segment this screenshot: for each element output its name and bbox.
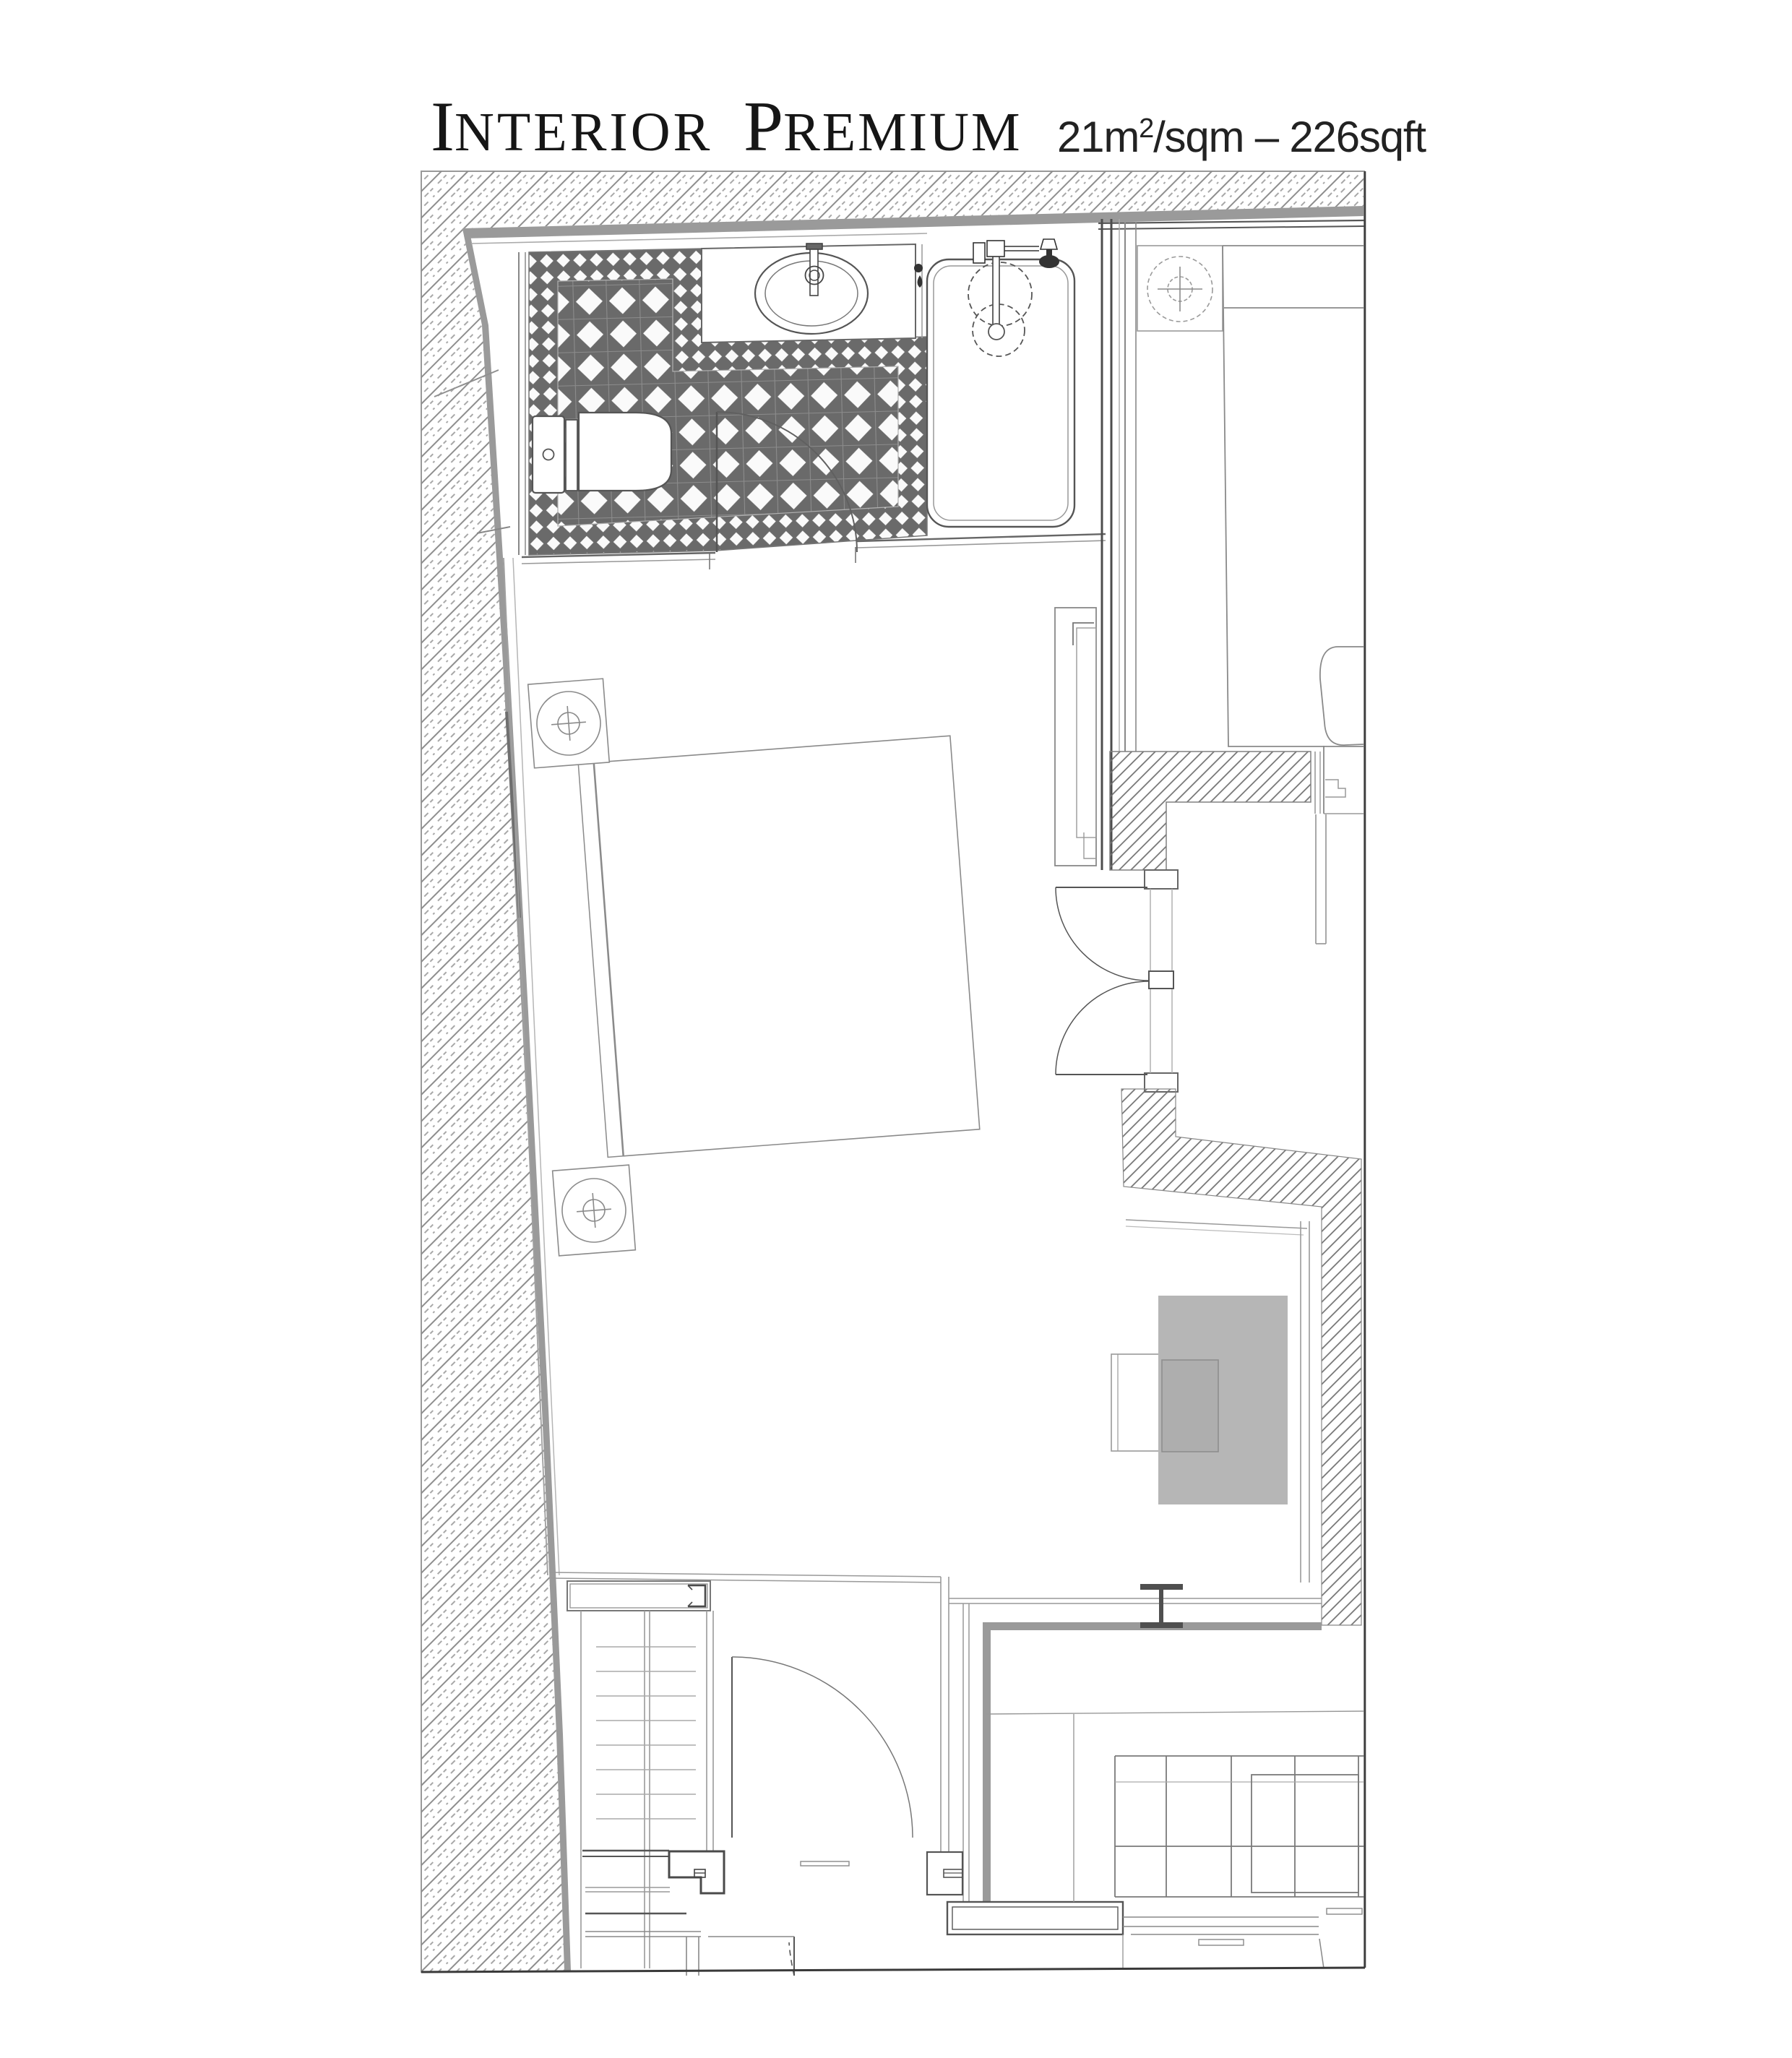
svg-text:21m2/sqm – 226sqft: 21m2/sqm – 226sqft bbox=[1057, 113, 1426, 161]
svg-text:INTERIOR: INTERIOR bbox=[431, 87, 712, 166]
svg-text:PREMIUM: PREMIUM bbox=[744, 87, 1022, 166]
